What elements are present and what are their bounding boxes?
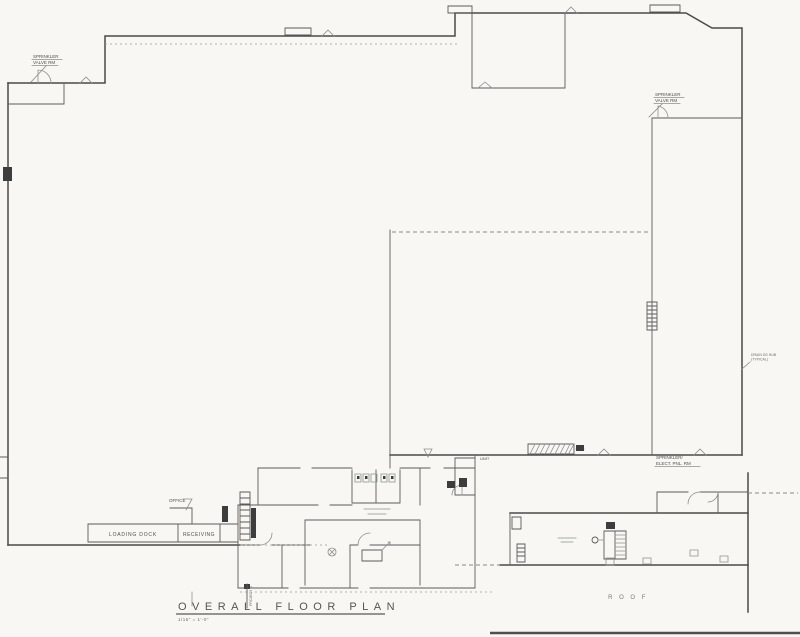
title-block: OVERALL FLOOR PLAN 1/16" = 1'-0" <box>176 601 400 622</box>
floor-plan-drawing: SPRINKLER VALVE RM SPRINKLER VALVE RM SP… <box>0 0 800 637</box>
label-drain-note-2: (TYPICAL) <box>751 358 768 362</box>
label-sprinkler-valve-rm-left-2: VALVE RM <box>33 60 55 65</box>
label-receiving: RECEIVING <box>183 532 215 538</box>
label-roof: R O O F <box>608 595 648 601</box>
labels: SPRINKLER VALVE RM SPRINKLER VALVE RM SP… <box>33 54 777 606</box>
outer-walls <box>8 13 748 612</box>
floor-plan-sheet: SPRINKLER VALVE RM SPRINKLER VALVE RM SP… <box>0 0 800 637</box>
label-sprinkler-valve-rm-left-1: SPRINKLER <box>33 54 59 59</box>
label-sprinkler-valve-rm-right-2: VALVE RM <box>655 98 677 103</box>
interior-walls <box>0 5 748 588</box>
detail-lines <box>38 7 728 606</box>
label-sprinkler-elect-pnl-rm-1: SPRINKLER/ <box>656 455 684 460</box>
drawing-scale: 1/16" = 1'-0" <box>178 617 209 622</box>
dark-fixtures <box>3 167 615 589</box>
label-office: OFFICE <box>169 498 186 503</box>
label-leaders <box>31 60 750 609</box>
label-unit: UNIT <box>480 456 490 461</box>
dashed-lines <box>105 44 798 592</box>
label-loading-dock: LOADING DOCK <box>109 532 157 538</box>
drawing-title: OVERALL FLOOR PLAN <box>178 601 400 613</box>
label-sprinkler-valve-rm-right-1: SPRINKLER <box>655 92 681 97</box>
label-drain-note-1: DRAIN DS HUB <box>751 353 777 357</box>
label-sprinkler-elect-pnl-rm-2: ELECT. PNL. RM <box>656 461 691 466</box>
